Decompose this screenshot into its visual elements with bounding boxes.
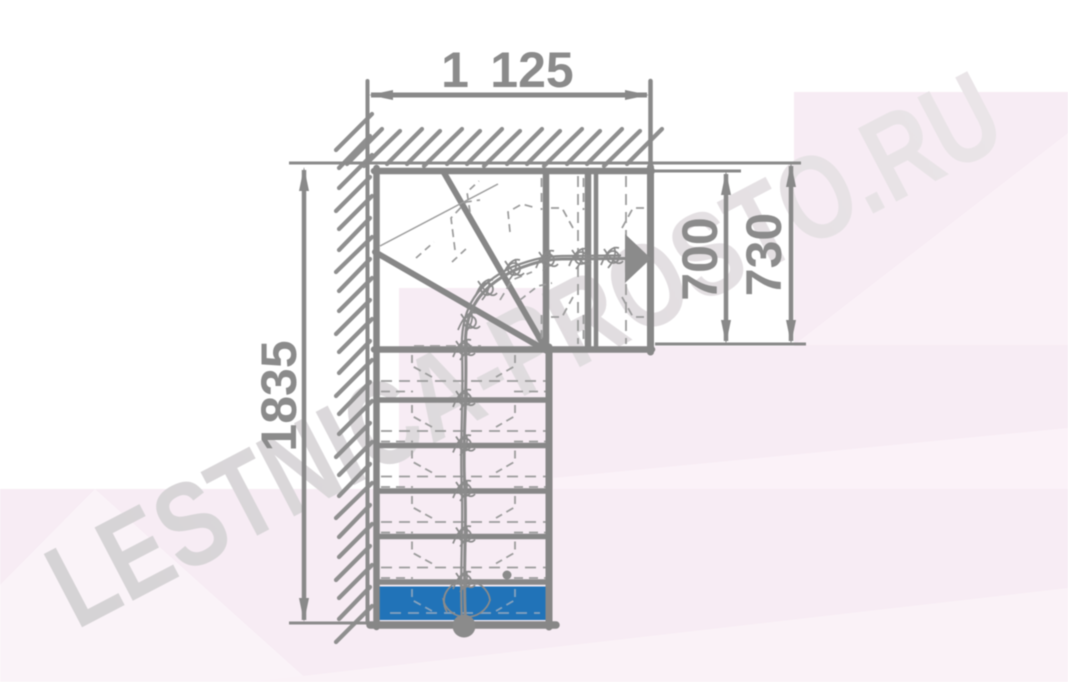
svg-text:700: 700 — [672, 217, 728, 300]
svg-text:125: 125 — [490, 42, 573, 98]
svg-text:730: 730 — [736, 213, 792, 296]
svg-text:1835: 1835 — [251, 340, 307, 451]
svg-text:1: 1 — [441, 42, 469, 98]
